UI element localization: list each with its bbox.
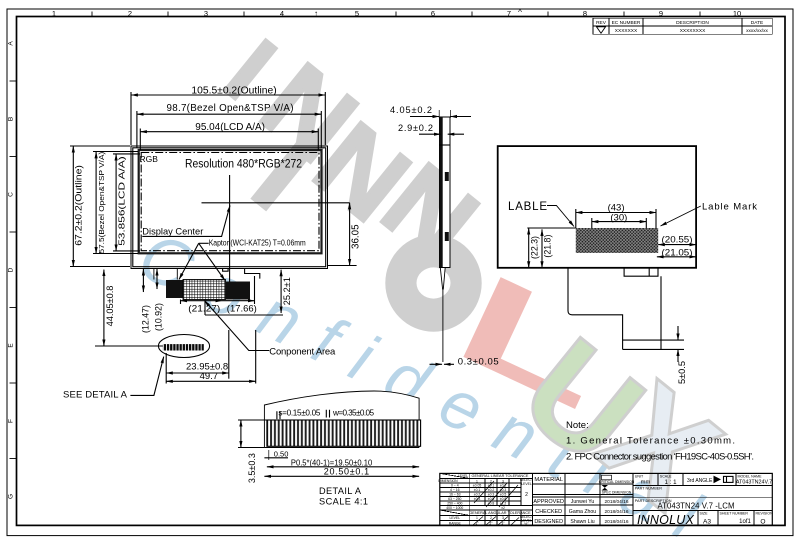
svg-text:3rd ANGLE: 3rd ANGLE	[687, 478, 713, 484]
svg-text:7: 7	[507, 9, 511, 18]
svg-text:s=0.15±0.05: s=0.15±0.05	[278, 408, 320, 417]
svg-text:±0.2: ±0.2	[500, 484, 507, 488]
svg-text:3: 3	[502, 479, 504, 483]
svg-text:±0.5: ±0.5	[488, 497, 495, 501]
svg-text:±0.8: ±0.8	[500, 497, 507, 501]
svg-text:G: G	[8, 494, 15, 499]
svg-text:INNOLUX: INNOLUX	[637, 513, 695, 527]
svg-text:C: C	[8, 192, 15, 197]
svg-text:(12.47): (12.47)	[141, 305, 151, 333]
svg-text:UNIT: UNIT	[635, 475, 644, 479]
svg-text:±0.3: ±0.3	[500, 488, 507, 492]
svg-text:±0.1: ±0.1	[488, 484, 495, 488]
svg-text:SPEC DIMENSION: SPEC DIMENSION	[602, 491, 632, 495]
svg-text:2: 2	[128, 9, 132, 18]
svg-text:2: 2	[490, 516, 492, 520]
svg-text:2: 2	[525, 492, 528, 498]
svg-text:±0.3: ±0.3	[488, 493, 495, 497]
svg-text:SHEET NUMBER: SHEET NUMBER	[720, 512, 749, 516]
svg-text:Kapton(WCI-KAT25) T=0.06mm: Kapton(WCI-KAT25) T=0.06mm	[209, 239, 306, 248]
svg-text:DATE: DATE	[751, 20, 763, 26]
svg-text:mm: mm	[641, 480, 651, 486]
svg-text:±0.1: ±0.1	[474, 488, 481, 492]
svg-text:(30): (30)	[610, 212, 627, 223]
svg-text:6: 6	[431, 9, 435, 18]
svg-text:±0.3: ±0.3	[474, 497, 481, 501]
svg-text:xxxx/xx/xx: xxxx/xx/xx	[746, 28, 768, 34]
svg-text:67.2±0.2(Outline): 67.2±0.2(Outline)	[74, 165, 84, 246]
svg-text:LEVEL: LEVEL	[521, 482, 532, 486]
svg-text:1of1: 1of1	[739, 519, 751, 525]
svg-text:9: 9	[659, 9, 663, 18]
svg-text:(21.8): (21.8)	[542, 235, 552, 258]
svg-text:Resolution 480*RGB*272: Resolution 480*RGB*272	[185, 159, 302, 171]
svg-text:98.7(Bezel Open&TSP V/A): 98.7(Bezel Open&TSP V/A)	[167, 103, 294, 114]
svg-text:Shawn Liu: Shawn Liu	[570, 519, 594, 525]
svg-text:^: ^	[518, 8, 522, 17]
svg-text:63 ~ 250: 63 ~ 250	[448, 497, 461, 501]
svg-text:2018/04/16: 2018/04/16	[604, 519, 628, 525]
svg-text:±2: ±2	[501, 506, 505, 510]
svg-text:(20.55): (20.55)	[662, 235, 693, 246]
svg-text:2.9±0.2: 2.9±0.2	[398, 123, 433, 133]
svg-text:25.2±1: 25.2±1	[282, 277, 292, 305]
svg-text:MODEL NAME: MODEL NAME	[738, 475, 763, 479]
svg-text:A: A	[8, 41, 15, 46]
svg-text:±0.05: ±0.05	[473, 484, 482, 488]
svg-text:XXXXXXX: XXXXXXX	[615, 28, 638, 34]
svg-text:1: 1	[476, 516, 478, 520]
svg-text:Note:: Note:	[566, 420, 589, 431]
svg-text:±0.2: ±0.2	[488, 488, 495, 492]
svg-text:PART NUMBER: PART NUMBER	[635, 487, 662, 491]
svg-text:½°: ½°	[524, 522, 529, 526]
svg-text:SEE DETAIL A: SEE DETAIL A	[63, 390, 128, 401]
svg-text:F: F	[8, 419, 15, 423]
svg-text:2018/04/16: 2018/04/16	[604, 509, 628, 515]
svg-text:0.3±0.05: 0.3±0.05	[458, 356, 499, 367]
svg-text:MATERIAL: MATERIAL	[534, 477, 563, 483]
svg-text:3.5±0.3: 3.5±0.3	[247, 453, 257, 483]
svg-text:DETAIL A: DETAIL A	[319, 486, 362, 496]
svg-text:4: 4	[280, 9, 284, 18]
svg-text:1: 1	[476, 479, 478, 483]
svg-text:CRITICAL DIMENSION: CRITICAL DIMENSION	[599, 480, 635, 484]
svg-text:REV: REV	[596, 20, 607, 26]
svg-text:E: E	[8, 343, 15, 348]
svg-text:16 ~ 63: 16 ~ 63	[449, 493, 461, 497]
svg-text:(10.92): (10.92)	[154, 303, 164, 331]
svg-text:EC NUMBER: EC NUMBER	[612, 20, 641, 26]
svg-text:DIMENSION: DIMENSION	[438, 479, 458, 483]
svg-text:w=0.35±0.05: w=0.35±0.05	[332, 408, 374, 417]
svg-text:SIZE: SIZE	[700, 512, 709, 516]
svg-text:1: 1	[52, 9, 56, 18]
svg-text:LABLE: LABLE	[508, 201, 547, 213]
svg-text:400 ~ 1000: 400 ~ 1000	[446, 506, 463, 510]
svg-text:RGB: RGB	[140, 154, 159, 164]
svg-text:±0.2: ±0.2	[474, 493, 481, 497]
svg-text:2: 2	[490, 479, 492, 483]
svg-text:5: 5	[355, 9, 359, 18]
svg-text:Conponent Area: Conponent Area	[269, 347, 336, 358]
svg-text:↑: ↑	[314, 9, 318, 18]
svg-text:SCALE 4:1: SCALE 4:1	[319, 496, 368, 506]
svg-text:53.856(LCD A/A): 53.856(LCD A/A)	[118, 156, 127, 246]
svg-text:(17.66): (17.66)	[227, 303, 257, 314]
svg-text:1 : 1: 1 : 1	[664, 479, 677, 486]
svg-text:44.05±0.8: 44.05±0.8	[105, 286, 115, 327]
svg-text:2. FPC Connector suggestion ‘: 2. FPC Connector suggestion ‘FH19SC-40S-…	[566, 452, 754, 463]
svg-text:Junwei Yu: Junwei Yu	[571, 499, 595, 505]
svg-text:CHECKED: CHECKED	[535, 509, 562, 515]
svg-text:0 ~ 4: 0 ~ 4	[451, 484, 459, 488]
svg-text:XXXXXXXX: XXXXXXXX	[680, 28, 706, 34]
svg-text:49.7: 49.7	[200, 371, 219, 382]
svg-text:±1.2: ±1.2	[500, 502, 507, 506]
svg-text:3: 3	[502, 516, 504, 520]
svg-text:4 ~ 16: 4 ~ 16	[450, 488, 460, 492]
svg-text:2018/04/16: 2018/04/16	[604, 499, 628, 505]
svg-text:RANGE: RANGE	[449, 522, 462, 526]
svg-text:DESIGNED: DESIGNED	[534, 519, 563, 525]
svg-text:DESCRIPTION: DESCRIPTION	[676, 20, 709, 26]
svg-text:A3: A3	[703, 518, 711, 525]
svg-text:(22.3): (22.3)	[530, 236, 540, 259]
svg-text:±0.8: ±0.8	[488, 502, 495, 506]
svg-text:AT043TN24V.7: AT043TN24V.7	[736, 480, 772, 486]
svg-text:AT043TN24 V.7 -LCM: AT043TN24 V.7 -LCM	[658, 502, 735, 511]
svg-text:8: 8	[583, 9, 587, 18]
svg-text:LEVEL: LEVEL	[458, 474, 469, 478]
svg-text:57.5(Bezel Open&TSP V/A): 57.5(Bezel Open&TSP V/A)	[97, 152, 106, 254]
svg-text:REVISION: REVISION	[756, 512, 774, 516]
svg-text:36.05: 36.05	[351, 224, 362, 249]
svg-text:±0.5: ±0.5	[500, 493, 507, 497]
svg-text:Lable Mark: Lable Mark	[702, 202, 757, 213]
svg-text:250 ~ 400: 250 ~ 400	[447, 502, 462, 506]
svg-text:5±0.5: 5±0.5	[677, 361, 687, 384]
svg-text:D: D	[8, 267, 15, 272]
svg-text:1. General Tolerance ±0.30mm.: 1. General Tolerance ±0.30mm.	[566, 436, 735, 447]
svg-text:4.05±0.2: 4.05±0.2	[390, 105, 432, 115]
svg-text:LEVEL: LEVEL	[450, 516, 461, 520]
svg-text:10: 10	[733, 9, 741, 18]
svg-text:Gama Zhou: Gama Zhou	[569, 509, 597, 515]
svg-text:3: 3	[204, 9, 208, 18]
svg-text:B: B	[8, 117, 15, 121]
svg-text:O: O	[760, 518, 765, 525]
svg-text:APPROVED: APPROVED	[533, 499, 564, 505]
svg-text:20.50±0.1: 20.50±0.1	[324, 466, 369, 476]
